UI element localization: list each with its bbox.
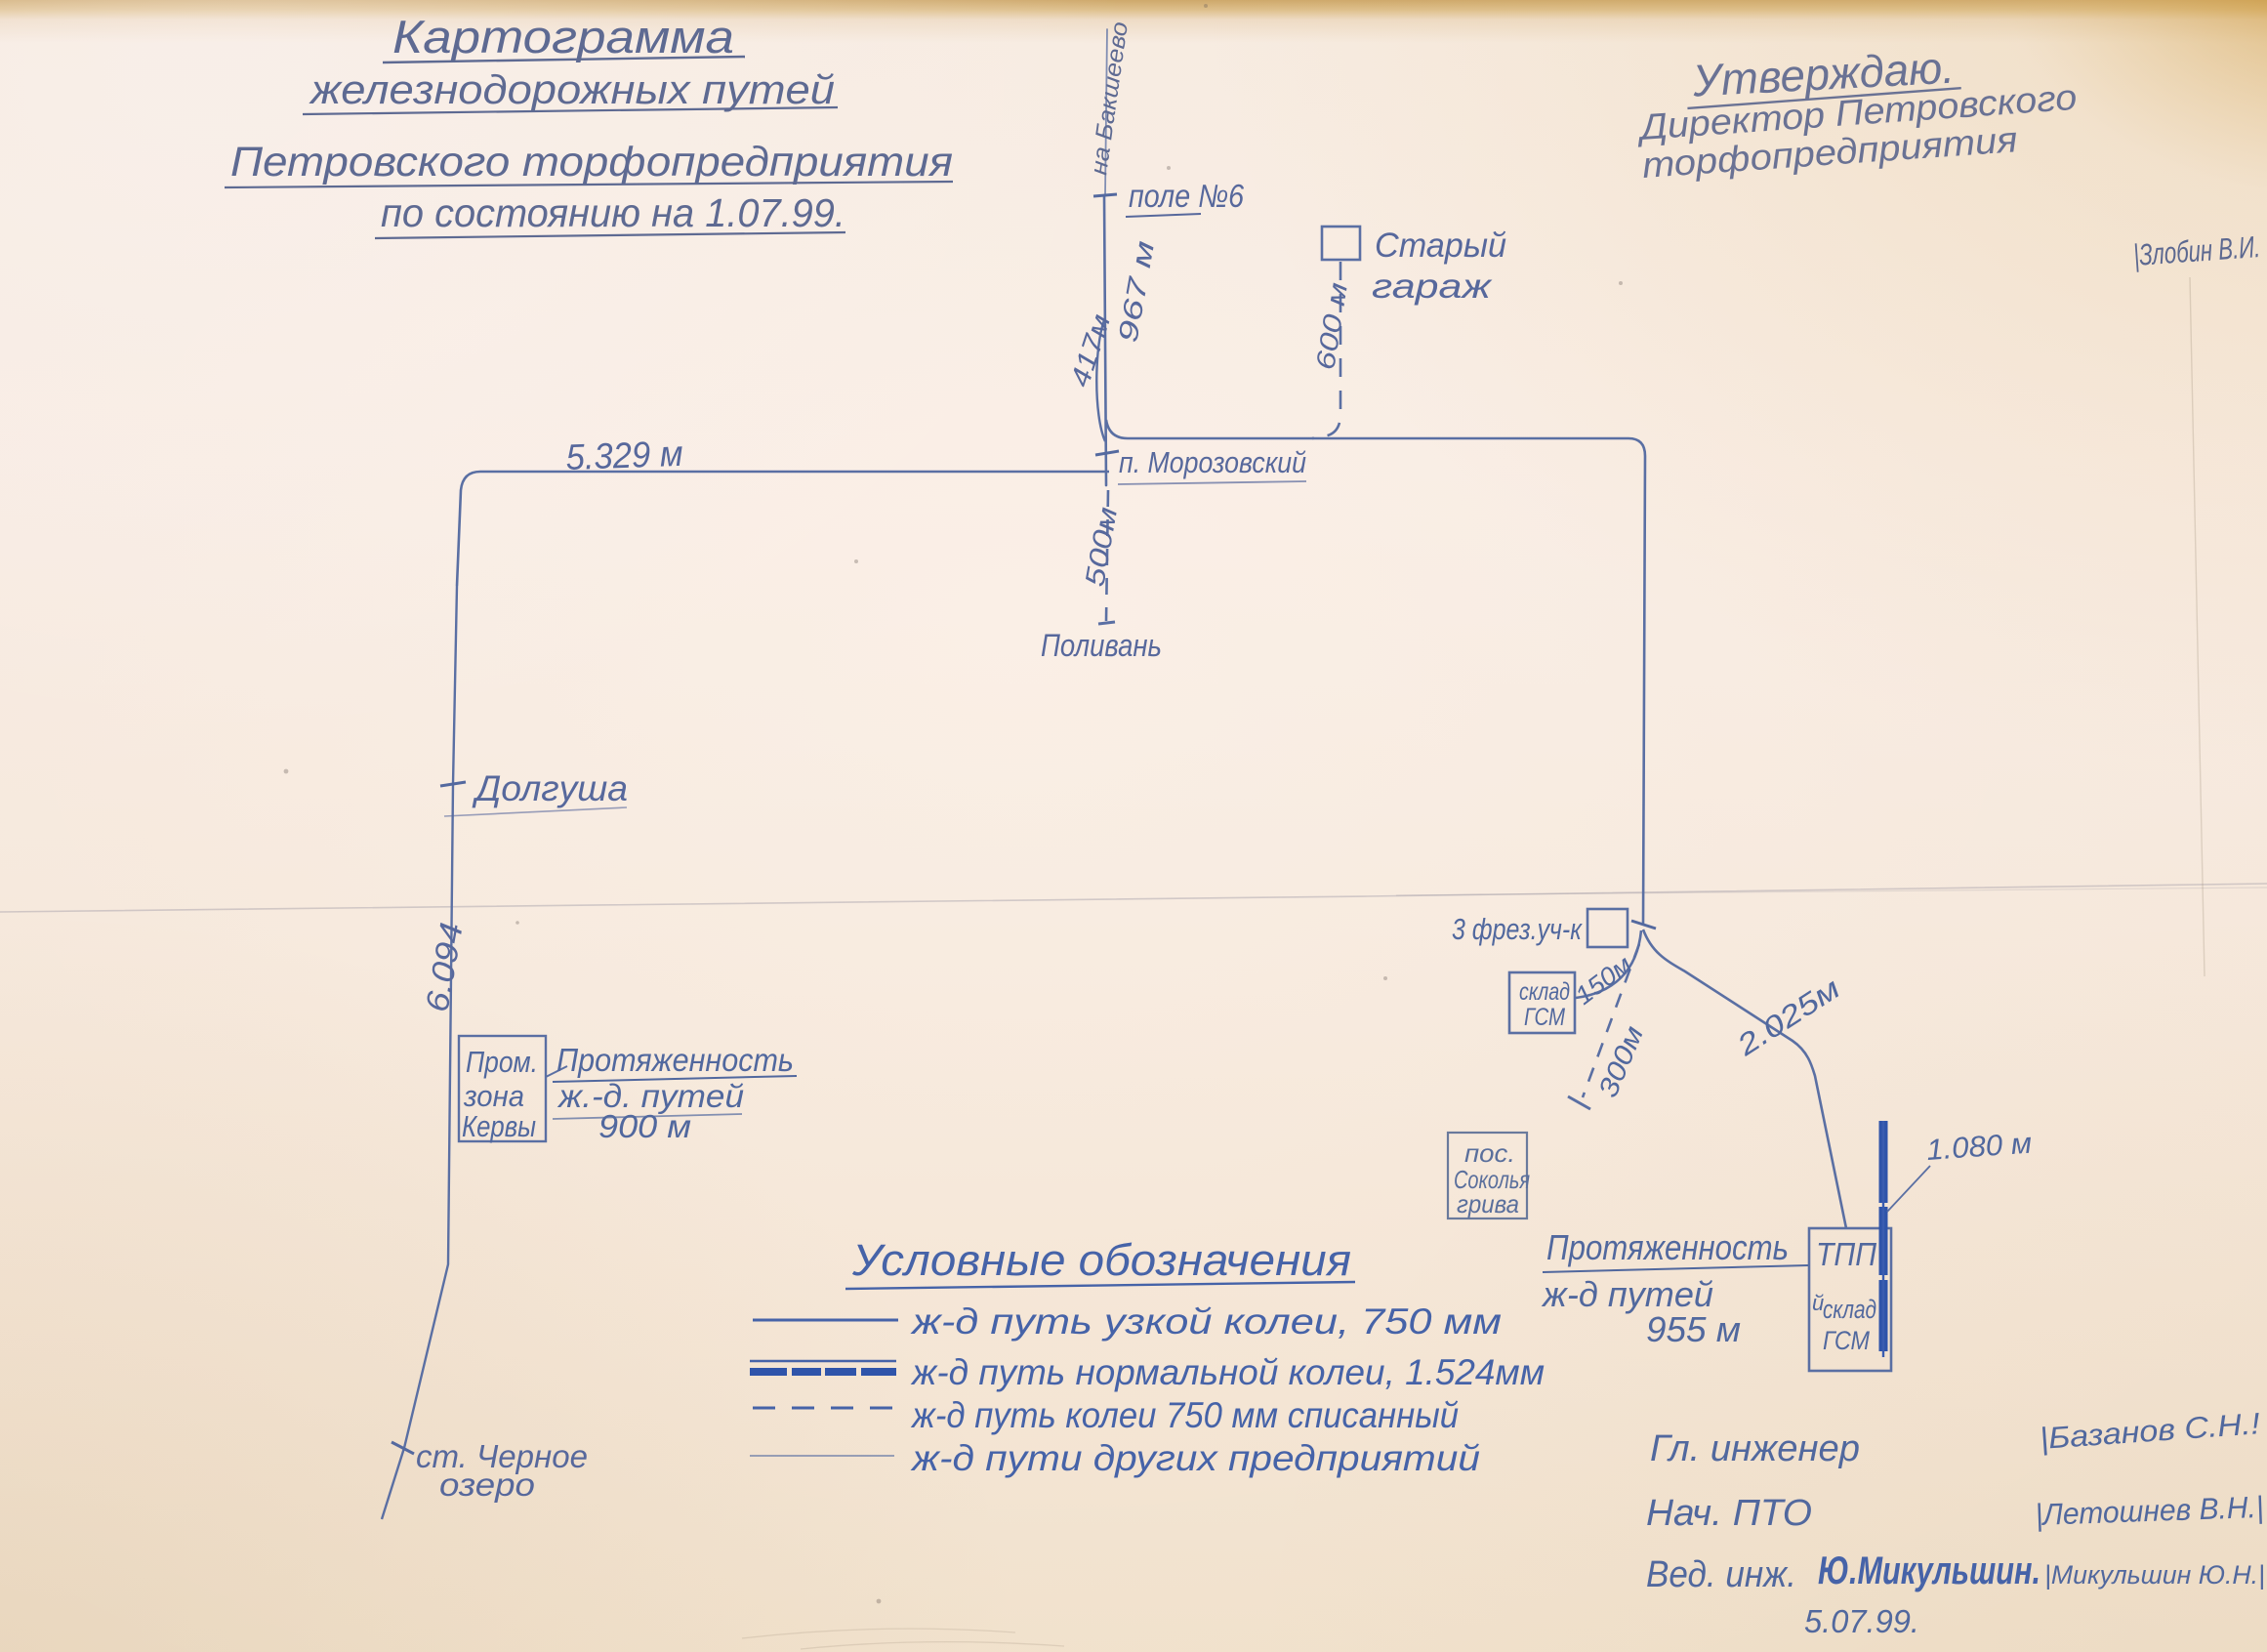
svg-text:Пром.: Пром. bbox=[466, 1045, 538, 1079]
svg-text:Гл. инженер: Гл. инженер bbox=[1650, 1428, 1860, 1469]
svg-text:3 фрез.уч-к: 3 фрез.уч-к bbox=[1452, 912, 1583, 946]
svg-text:Петровского торфопредприятия: Петровского торфопредприятия bbox=[230, 139, 953, 186]
svg-text:Долгуша: Долгуша bbox=[472, 768, 628, 808]
svg-text:ж-д путь нормальной колеи, 1.5: ж-д путь нормальной колеи, 1.524мм bbox=[910, 1352, 1545, 1392]
svg-text:озеро: озеро bbox=[439, 1466, 535, 1503]
svg-text:Вед. инж.: Вед. инж. bbox=[1646, 1554, 1796, 1595]
svg-text:Нач. ПТО: Нач. ПТО bbox=[1646, 1493, 1812, 1534]
svg-text:зона: зона bbox=[463, 1079, 524, 1113]
svg-text:Кервы: Кервы bbox=[462, 1109, 536, 1143]
svg-text:5.329 м: 5.329 м bbox=[565, 434, 683, 477]
svg-text:ж-д путей: ж-д путей bbox=[1541, 1274, 1713, 1314]
svg-text:Условные обозначения: Условные обозначения bbox=[851, 1235, 1351, 1285]
svg-text:Поливань: Поливань bbox=[1041, 628, 1162, 663]
svg-text:955 м: 955 м bbox=[1646, 1309, 1741, 1349]
svg-text:склад: склад bbox=[1519, 978, 1570, 1006]
svg-text:ТПП: ТПП bbox=[1816, 1236, 1876, 1272]
svg-text:900 м: 900 м bbox=[598, 1108, 691, 1144]
svg-text:склад: склад bbox=[1823, 1295, 1876, 1324]
svg-text:гараж: гараж bbox=[1372, 268, 1493, 306]
svg-text:ГСМ: ГСМ bbox=[1524, 1004, 1565, 1031]
svg-text:ж-д путь колеи 750 мм списанны: ж-д путь колеи 750 мм списанный bbox=[910, 1395, 1459, 1435]
svg-text:|Микульшин Ю.Н.|: |Микульшин Ю.Н.| bbox=[2044, 1560, 2265, 1590]
svg-text:грива: грива bbox=[1457, 1189, 1519, 1218]
svg-text:5.07.99.: 5.07.99. bbox=[1804, 1603, 1919, 1639]
svg-text:ж-д пути других предприятий: ж-д пути других предприятий bbox=[910, 1438, 1480, 1478]
svg-text:по состоянию на 1.07.99.: по состоянию на 1.07.99. bbox=[381, 190, 845, 235]
svg-text:п. Морозовский: п. Морозовский bbox=[1119, 445, 1306, 479]
svg-text:ж-д путь узкой колеи, 750 мм: ж-д путь узкой колеи, 750 мм bbox=[910, 1301, 1502, 1342]
svg-text:Протяженность: Протяженность bbox=[556, 1042, 794, 1078]
svg-text:железнодорожных путей: железнодорожных путей bbox=[309, 66, 835, 112]
svg-text:Картограмма: Картограмма bbox=[392, 11, 734, 62]
svg-text:Старый: Старый bbox=[1375, 227, 1506, 265]
svg-text:поле №6: поле №6 bbox=[1129, 178, 1245, 214]
svg-text:ГСМ: ГСМ bbox=[1823, 1326, 1870, 1355]
svg-text:Протяженность: Протяженность bbox=[1546, 1227, 1789, 1267]
svg-text:Ю.Микульшин.: Ю.Микульшин. bbox=[1818, 1549, 2040, 1592]
svg-text:пос.: пос. bbox=[1464, 1138, 1515, 1168]
